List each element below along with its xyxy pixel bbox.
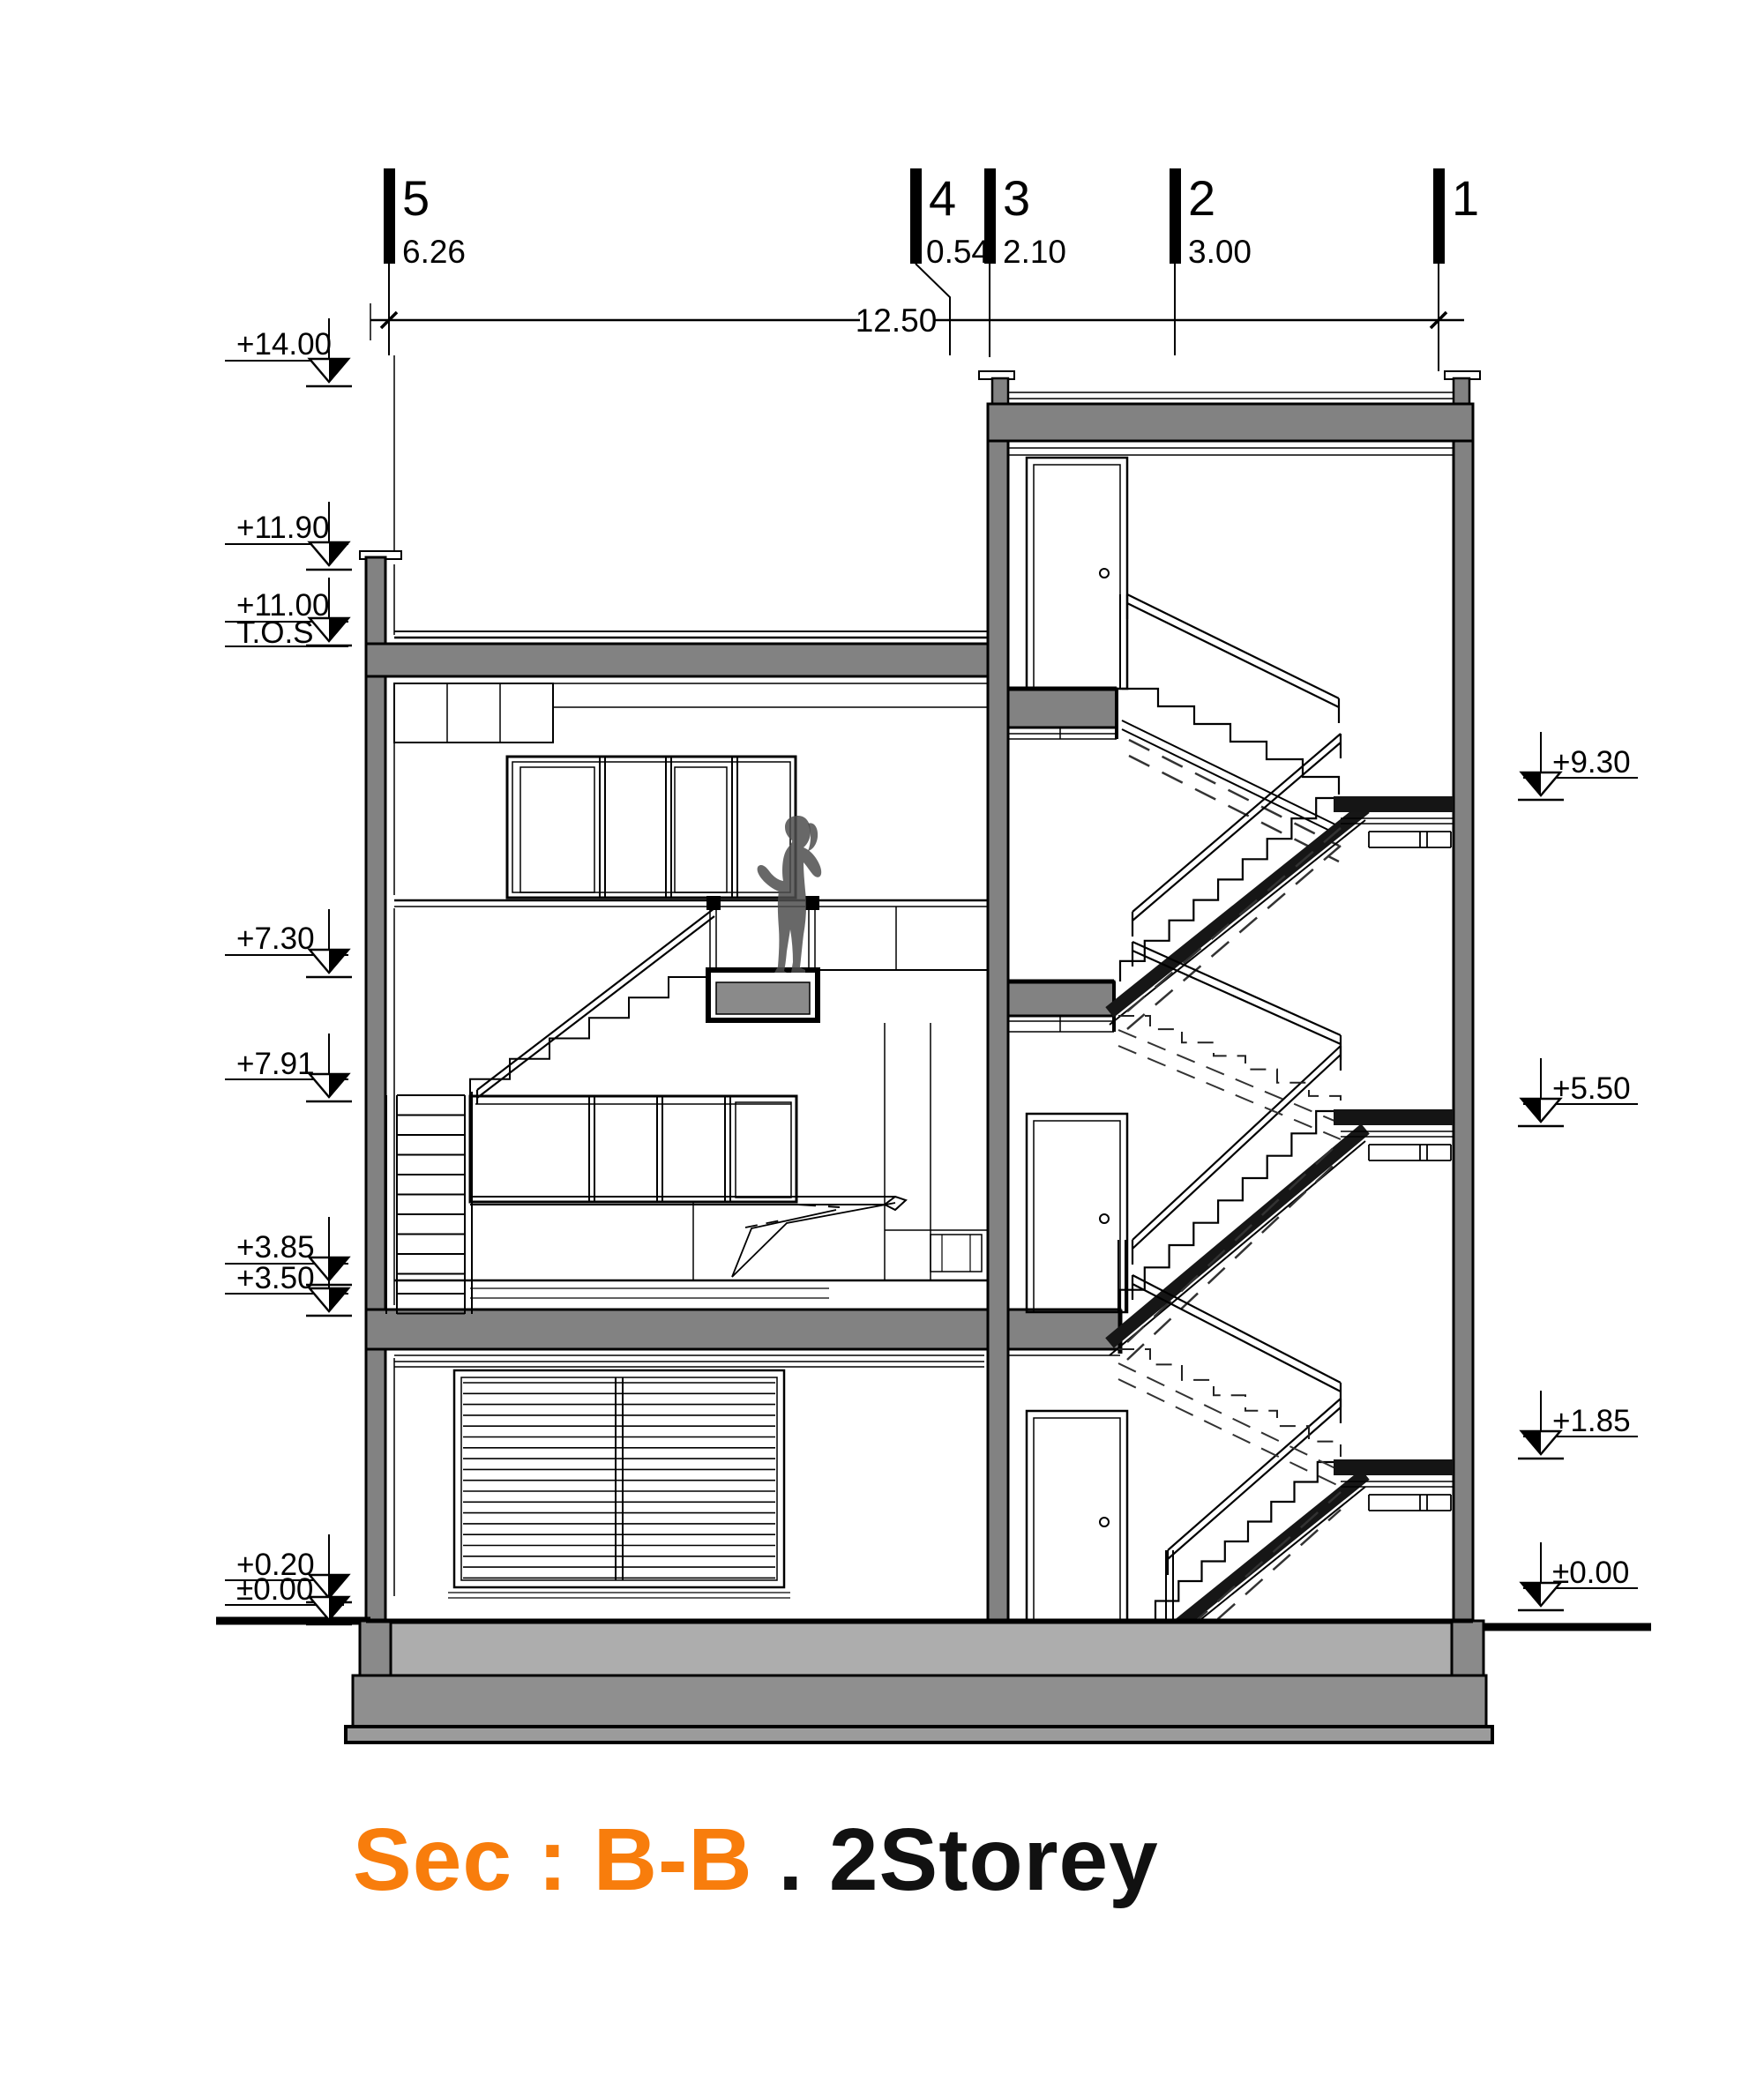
- level-labels-right: +9.30 +5.50 +1.85 ±0.00: [1523, 745, 1638, 1590]
- level-label: ±0.00: [1552, 1556, 1629, 1590]
- person-silhouette: [758, 816, 822, 973]
- grid-number: 4: [929, 170, 956, 226]
- level-label-tos: T.O.S: [236, 616, 314, 650]
- level-marker-arrows: [306, 318, 1564, 1624]
- drawing-title: Sec : B-B . 2Storey: [353, 1810, 1159, 1911]
- section-drawing: 5 4 3 2 1 6.26 0.54 2.10 3.00 12.50 +14.…: [0, 0, 1764, 2082]
- title-storey-part: . 2Storey: [753, 1810, 1159, 1909]
- grid-labels: 5 4 3 2 1 6.26 0.54 2.10 3.00 12.50: [402, 170, 1479, 339]
- level-label: +1.85: [1552, 1404, 1631, 1438]
- middle-window: [470, 1096, 796, 1202]
- level-label: +3.50: [236, 1261, 315, 1295]
- grid-number: 2: [1188, 170, 1215, 226]
- door-middle: [1027, 1114, 1127, 1312]
- door-bottom: [1027, 1411, 1127, 1621]
- level-label: +7.30: [236, 922, 315, 956]
- door-top: [1027, 458, 1127, 689]
- level-label: +7.91: [236, 1047, 315, 1081]
- level-label: +5.50: [1552, 1071, 1631, 1106]
- grid-number: 3: [1003, 170, 1030, 226]
- grid-spacing: 3.00: [1188, 234, 1252, 270]
- grid-spacing: 2.10: [1003, 234, 1066, 270]
- stair-tower: [397, 371, 1480, 1668]
- grid-spacing: 0.54: [926, 234, 990, 270]
- grid-number: 5: [402, 170, 430, 226]
- architectural-section-sheet: 5 4 3 2 1 6.26 0.54 2.10 3.00 12.50 +14.…: [0, 0, 1764, 2082]
- level-label: +9.30: [1552, 745, 1631, 780]
- grid-number: 1: [1452, 170, 1479, 226]
- overall-dim-text: 12.50: [856, 302, 938, 339]
- balcony-landing: [708, 970, 818, 1020]
- level-label: +11.90: [236, 511, 329, 545]
- level-label: +14.00: [236, 327, 332, 362]
- level-label: ±0.00: [236, 1572, 313, 1607]
- grid-spacing: 6.26: [402, 234, 466, 270]
- upper-window: [507, 757, 796, 898]
- title-section-part: Sec : B-B: [353, 1810, 753, 1909]
- level-label: +3.85: [236, 1230, 315, 1265]
- foundation: [216, 1621, 1651, 1742]
- grid-lines: [370, 168, 1445, 550]
